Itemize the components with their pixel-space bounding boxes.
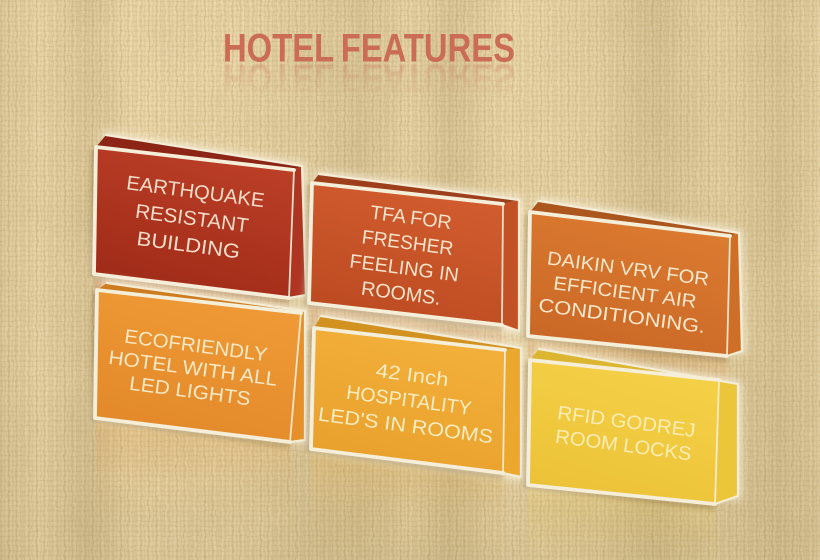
svg-text:HOTEL FEATURES: HOTEL FEATURES bbox=[223, 56, 515, 100]
